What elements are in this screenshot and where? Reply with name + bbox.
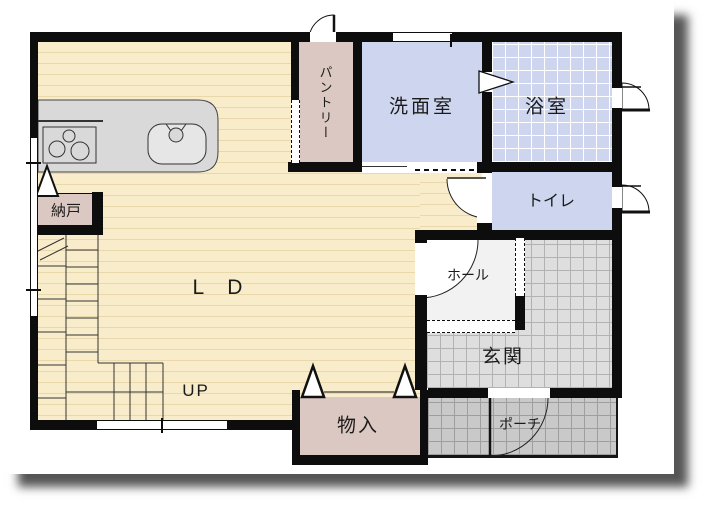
wall-closet-left [292, 390, 300, 465]
room-ld-nook-floor [420, 172, 482, 230]
sliding-door-washroom [362, 166, 407, 167]
wall-closet-right [420, 390, 428, 465]
wall-storage-room-bottom [38, 225, 103, 235]
wall-wash-bath-upper [482, 38, 492, 72]
room-label-toilet: トイレ [527, 187, 575, 211]
room-label-washroom: 洗面室 [389, 92, 455, 119]
wall-top-left [30, 32, 310, 42]
wall-bath-bottom [482, 162, 622, 172]
wall-right-b [612, 108, 622, 187]
wall-left-upper [30, 42, 38, 138]
opening-pantry-side [291, 100, 300, 163]
room-label-storage-closet: 物入 [337, 411, 379, 438]
floor-plan: L D UP パントリー 洗面室 浴室 トイレ ホール 玄関 ポーチ 物入 納戸 [0, 0, 710, 515]
room-label-storage-room: 納戸 [51, 200, 81, 221]
wall-top-right [452, 32, 622, 42]
wall-right-c [612, 208, 622, 398]
wall-entrance-porch-b [550, 388, 618, 398]
opening-toilet-window [612, 187, 622, 208]
room-label-up: UP [182, 381, 210, 401]
wall-wash-bath-lower [482, 92, 492, 162]
wall-pantry-left [291, 42, 299, 100]
opening-front-door [488, 388, 550, 398]
wall-bottom-a [30, 420, 97, 430]
opening-toilet-door [477, 179, 492, 223]
room-label-porch: ポーチ [499, 414, 541, 434]
wall-pantry-washroom [353, 38, 362, 162]
window-left-tick-upper [26, 162, 41, 164]
wall-right-a [612, 42, 622, 88]
window-left-tick-lower [26, 289, 41, 291]
wall-bottom-b [227, 420, 295, 430]
room-label-entrance: 玄関 [482, 342, 524, 369]
wall-hall-west [415, 295, 427, 390]
room-label-ld: L D [193, 276, 252, 300]
opening-bath-window [612, 88, 622, 108]
window-bottom-tick [161, 418, 163, 433]
opening-pantry-door [310, 32, 336, 42]
dashed-opening-washroom [415, 169, 477, 171]
window-washroom [393, 32, 452, 42]
wall-entrance-porch-a [428, 388, 488, 398]
opening-washroom [362, 162, 477, 173]
room-label-bath: 浴室 [525, 92, 569, 119]
wall-pantry-bottom [288, 162, 362, 172]
room-label-hall: ホール [447, 265, 489, 285]
wall-closet-bottom [292, 455, 428, 465]
window-washroom-tick [450, 34, 452, 47]
wall-top-mid [336, 32, 393, 42]
wall-hall-step-stub [515, 296, 525, 330]
wall-toilet-left-stub [477, 223, 492, 240]
wall-left-lower [30, 316, 38, 430]
opening-hall-door [415, 243, 427, 295]
step-edge-hall-horizontal [427, 320, 515, 333]
room-label-pantry: パントリー [316, 66, 335, 141]
step-edge-hall-vertical [515, 238, 525, 296]
